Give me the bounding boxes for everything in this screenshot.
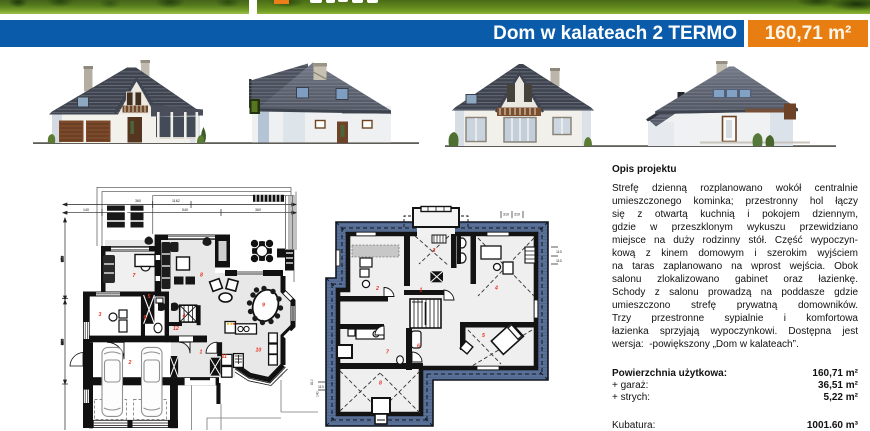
svg-text:1: 1 [200, 350, 203, 356]
svg-text:8: 8 [379, 381, 382, 387]
svg-text:8: 8 [200, 273, 203, 279]
svg-text:1: 1 [420, 288, 423, 294]
svg-text:110: 110 [556, 250, 562, 254]
svg-text:6: 6 [144, 315, 147, 321]
svg-text:310: 310 [514, 213, 520, 217]
svg-text:2: 2 [375, 286, 379, 292]
svg-text:9: 9 [262, 303, 265, 309]
svg-text:10: 10 [256, 348, 262, 354]
svg-text:110: 110 [556, 259, 562, 263]
svg-text:4: 4 [494, 286, 498, 292]
svg-text:110: 110 [318, 385, 324, 389]
svg-text:11: 11 [222, 354, 227, 360]
svg-text:5: 5 [148, 294, 151, 300]
svg-text:6: 6 [417, 344, 420, 350]
svg-text:7: 7 [133, 273, 137, 279]
svg-text:3: 3 [433, 248, 436, 254]
svg-text:4: 4 [182, 314, 186, 320]
svg-text:2: 2 [128, 360, 132, 366]
svg-text:12: 12 [173, 326, 179, 332]
svg-text:810: 810 [310, 379, 314, 385]
svg-text:3: 3 [99, 312, 102, 318]
svg-text:5: 5 [482, 333, 485, 339]
svg-text:310: 310 [503, 213, 509, 217]
